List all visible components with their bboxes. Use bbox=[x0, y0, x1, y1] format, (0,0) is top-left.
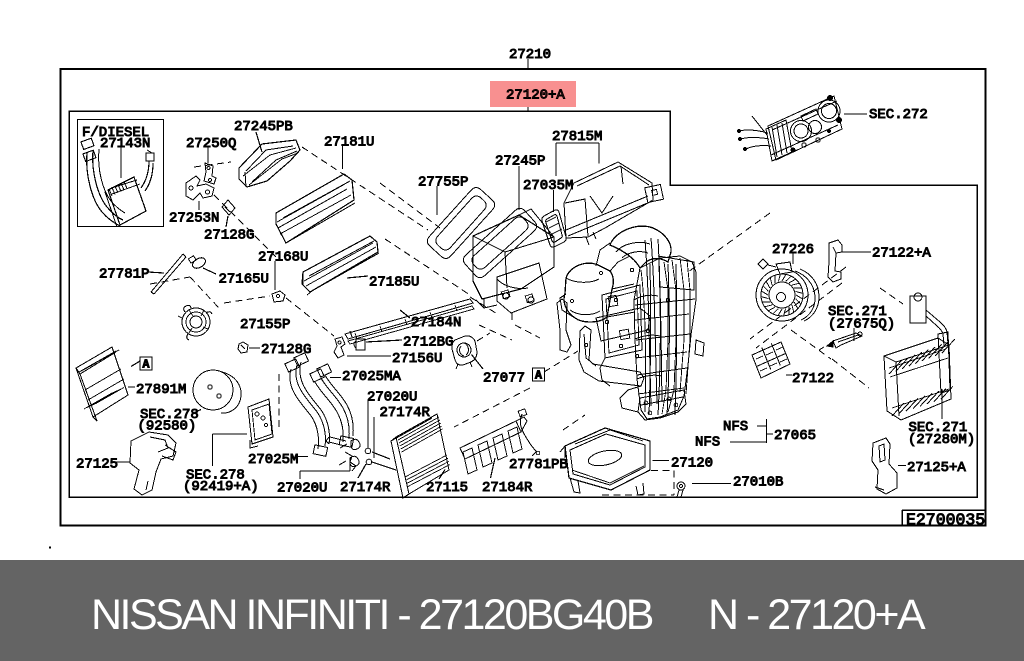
svg-text:27122: 27122 bbox=[792, 371, 834, 387]
svg-text:27010B: 27010B bbox=[733, 474, 783, 490]
svg-text:27125+A: 27125+A bbox=[907, 460, 966, 476]
svg-text:27115: 27115 bbox=[426, 480, 468, 496]
svg-text:27755P: 27755P bbox=[418, 174, 468, 190]
svg-text:NFS: NFS bbox=[695, 434, 720, 450]
svg-text:27184N: 27184N bbox=[411, 315, 461, 331]
svg-text:27891M: 27891M bbox=[136, 382, 186, 398]
svg-text:27781P: 27781P bbox=[99, 266, 149, 282]
svg-text:27210: 27210 bbox=[509, 47, 551, 63]
svg-text:27025M: 27025M bbox=[248, 452, 298, 468]
svg-text:27185U: 27185U bbox=[369, 274, 419, 290]
svg-text:27125: 27125 bbox=[76, 456, 118, 472]
svg-text:27155P: 27155P bbox=[240, 317, 290, 333]
svg-text:27245PB: 27245PB bbox=[234, 119, 293, 135]
svg-text:27035M: 27035M bbox=[523, 178, 573, 194]
svg-text:(27280M): (27280M) bbox=[908, 432, 975, 448]
svg-text:27077: 27077 bbox=[483, 370, 525, 386]
svg-text:27120: 27120 bbox=[671, 455, 713, 471]
svg-text:27065: 27065 bbox=[774, 428, 816, 444]
svg-text:SEC.272: SEC.272 bbox=[869, 107, 928, 123]
svg-text:(27675Q): (27675Q) bbox=[828, 316, 895, 332]
svg-text:N - 27120+A: N - 27120+A bbox=[708, 591, 926, 639]
svg-text:27253N: 27253N bbox=[169, 210, 219, 226]
svg-text:(92580): (92580) bbox=[138, 418, 197, 434]
svg-text:27168U: 27168U bbox=[258, 249, 308, 265]
svg-text:27184R: 27184R bbox=[482, 480, 533, 496]
svg-text:27174R: 27174R bbox=[380, 405, 431, 421]
svg-text:(92419+A): (92419+A) bbox=[183, 479, 259, 495]
svg-text:27143N: 27143N bbox=[100, 136, 150, 152]
svg-text:27181U: 27181U bbox=[324, 134, 374, 150]
svg-text:27025MA: 27025MA bbox=[342, 369, 401, 385]
svg-text:2712BG: 2712BG bbox=[403, 334, 453, 350]
svg-text:27174R: 27174R bbox=[340, 480, 391, 496]
svg-text:27128G: 27128G bbox=[204, 227, 254, 243]
svg-text:27120+A: 27120+A bbox=[506, 88, 565, 104]
svg-text:A: A bbox=[143, 359, 150, 372]
svg-text:27156U: 27156U bbox=[392, 351, 442, 367]
svg-text:NISSAN INFINITI - 27120BG40B: NISSAN INFINITI - 27120BG40B bbox=[91, 591, 653, 639]
svg-text:27020U: 27020U bbox=[367, 389, 417, 405]
svg-text:27250Q: 27250Q bbox=[186, 136, 236, 152]
svg-text:27122+A: 27122+A bbox=[872, 245, 931, 261]
svg-text:NFS: NFS bbox=[723, 419, 748, 435]
svg-text:27781PB: 27781PB bbox=[509, 457, 568, 473]
svg-text:E2700035: E2700035 bbox=[906, 511, 985, 530]
svg-text:27165U: 27165U bbox=[219, 271, 269, 287]
svg-text:A: A bbox=[535, 370, 542, 383]
svg-text:27128G: 27128G bbox=[261, 342, 311, 358]
svg-text:27020U: 27020U bbox=[277, 480, 327, 496]
svg-text:27245P: 27245P bbox=[495, 153, 545, 169]
